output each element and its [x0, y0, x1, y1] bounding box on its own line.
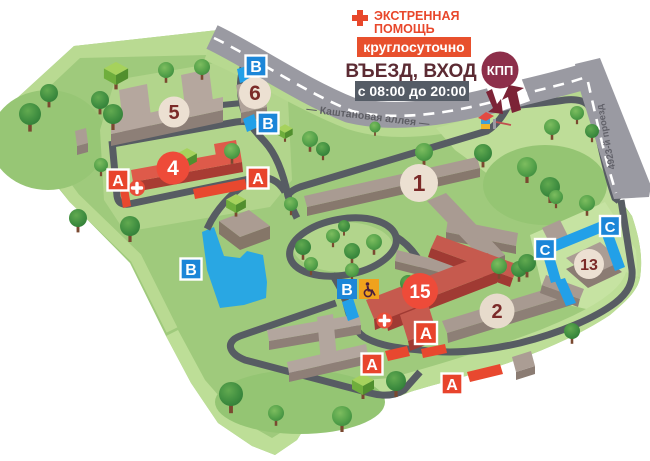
- svg-text:4: 4: [167, 157, 179, 180]
- svg-text:А: А: [366, 357, 378, 374]
- svg-text:В: В: [250, 59, 262, 76]
- svg-text:КПП: КПП: [487, 63, 514, 78]
- svg-text:В: В: [341, 282, 353, 299]
- svg-text:15: 15: [409, 282, 431, 303]
- svg-text:А: А: [252, 171, 264, 188]
- svg-text:С: С: [605, 219, 616, 236]
- svg-text:2: 2: [491, 301, 502, 323]
- svg-text:6: 6: [249, 82, 261, 105]
- svg-text:А: А: [446, 377, 458, 394]
- svg-text:13: 13: [580, 257, 598, 274]
- svg-text:с 08:00 до 20:00: с 08:00 до 20:00: [358, 83, 467, 99]
- svg-text:круглосуточно: круглосуточно: [363, 39, 464, 55]
- svg-text:В: В: [262, 116, 274, 133]
- svg-text:А: А: [112, 173, 124, 190]
- svg-text:В: В: [185, 262, 197, 279]
- svg-text:ВЪЕЗД, ВХОД: ВЪЕЗД, ВХОД: [345, 61, 477, 82]
- svg-text:5: 5: [168, 102, 179, 124]
- svg-text:С: С: [540, 242, 551, 259]
- svg-text:ПОМОЩЬ: ПОМОЩЬ: [374, 22, 435, 36]
- svg-text:ЭКСТРЕННАЯ: ЭКСТРЕННАЯ: [374, 9, 459, 23]
- svg-text:А: А: [420, 324, 432, 343]
- svg-text:1: 1: [413, 170, 426, 196]
